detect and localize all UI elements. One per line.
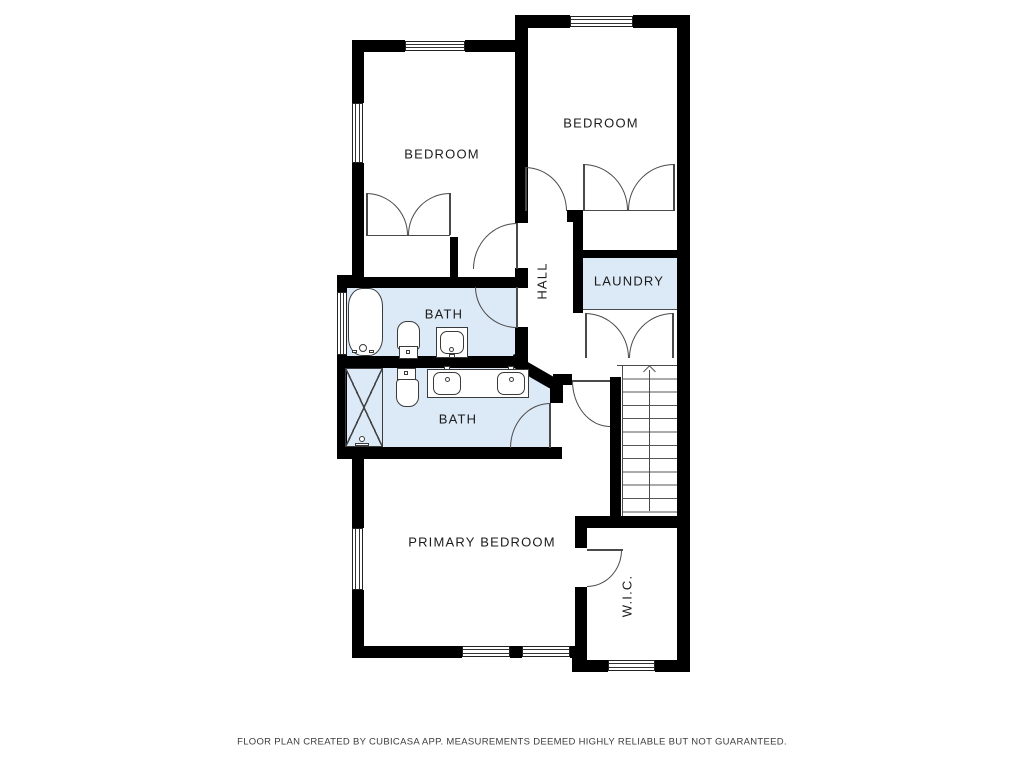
toilet-button-icon [404,371,408,375]
door-arc [587,550,622,587]
bifold-door-arc [628,164,674,210]
wall [352,453,364,528]
door-leaf [585,313,587,358]
wall [352,40,364,103]
bifold-door-arc [408,193,450,235]
stairs-center-line [649,370,650,511]
wall [465,40,517,52]
floor-plan: BEDROOM BEDROOM BATH BATH HALL LAUNDRY P… [0,0,1024,768]
wall [575,587,587,662]
room-label-bath-2: BATH [439,412,478,427]
door-leaf [672,313,674,358]
window [337,292,347,355]
room-label-laundry: LAUNDRY [594,274,664,289]
window [608,660,655,671]
wall [677,15,690,672]
wall [633,15,678,28]
window [352,103,363,163]
window [522,646,570,657]
faucet-handle-icon [352,350,357,353]
closet-opening-line [366,235,450,236]
window [405,41,465,51]
toilet-button-icon [406,350,410,354]
room-label-bath-1: BATH [425,307,464,322]
bifold-door-arc [629,313,673,358]
door-arc [525,167,567,211]
door-leaf [449,193,451,235]
shower [345,368,383,447]
wall [337,356,524,368]
closet-opening-line [583,210,675,211]
faucet-icon [509,377,514,382]
wall [655,660,690,672]
door-leaf [516,223,518,269]
faucet-handle-icon [369,350,374,353]
room-label-wic: W.I.C. [620,575,635,618]
sink [497,372,525,395]
wall [573,210,583,313]
faucet-icon [359,344,367,352]
laundry-opening-line [583,309,677,310]
shower-head-icon [359,436,365,442]
window [462,646,510,657]
bifold-door-arc [585,313,629,358]
faucet-icon [444,366,450,370]
bifold-door-arc [583,164,628,210]
door-leaf [525,167,527,211]
door-arc [473,223,517,269]
room-label-primary-bedroom: PRIMARY BEDROOM [408,535,556,550]
room-label-bedroom-1: BEDROOM [404,147,480,162]
door-leaf [673,164,675,210]
wall [553,374,572,385]
sink [433,372,461,395]
door-arc [572,381,610,427]
disclaimer-text: FLOOR PLAN CREATED BY CUBICASA APP. MEAS… [237,737,787,748]
faucet-icon [445,377,450,382]
door-leaf [572,380,610,382]
door-leaf [366,193,368,235]
faucet-icon [449,347,454,352]
wall [610,377,621,518]
door-leaf [549,403,551,448]
wall [515,210,525,222]
faucet-icon [449,354,455,358]
wall [352,646,462,658]
room-label-bedroom-2: BEDROOM [563,116,639,131]
wall [337,447,562,459]
room-label-hall: HALL [535,262,550,299]
wall [450,237,458,288]
door-leaf [587,549,623,551]
wall [575,516,587,548]
wall [573,250,677,258]
faucet-icon [508,366,514,370]
window [570,16,633,27]
door-leaf [516,287,518,328]
toilet [396,379,419,407]
wall [575,516,690,528]
wall [510,646,522,658]
shower-head-icon [355,443,369,446]
bifold-door-arc [366,193,408,235]
wall [337,285,347,292]
window [352,528,363,590]
wall [352,163,364,283]
door-leaf [583,164,585,210]
